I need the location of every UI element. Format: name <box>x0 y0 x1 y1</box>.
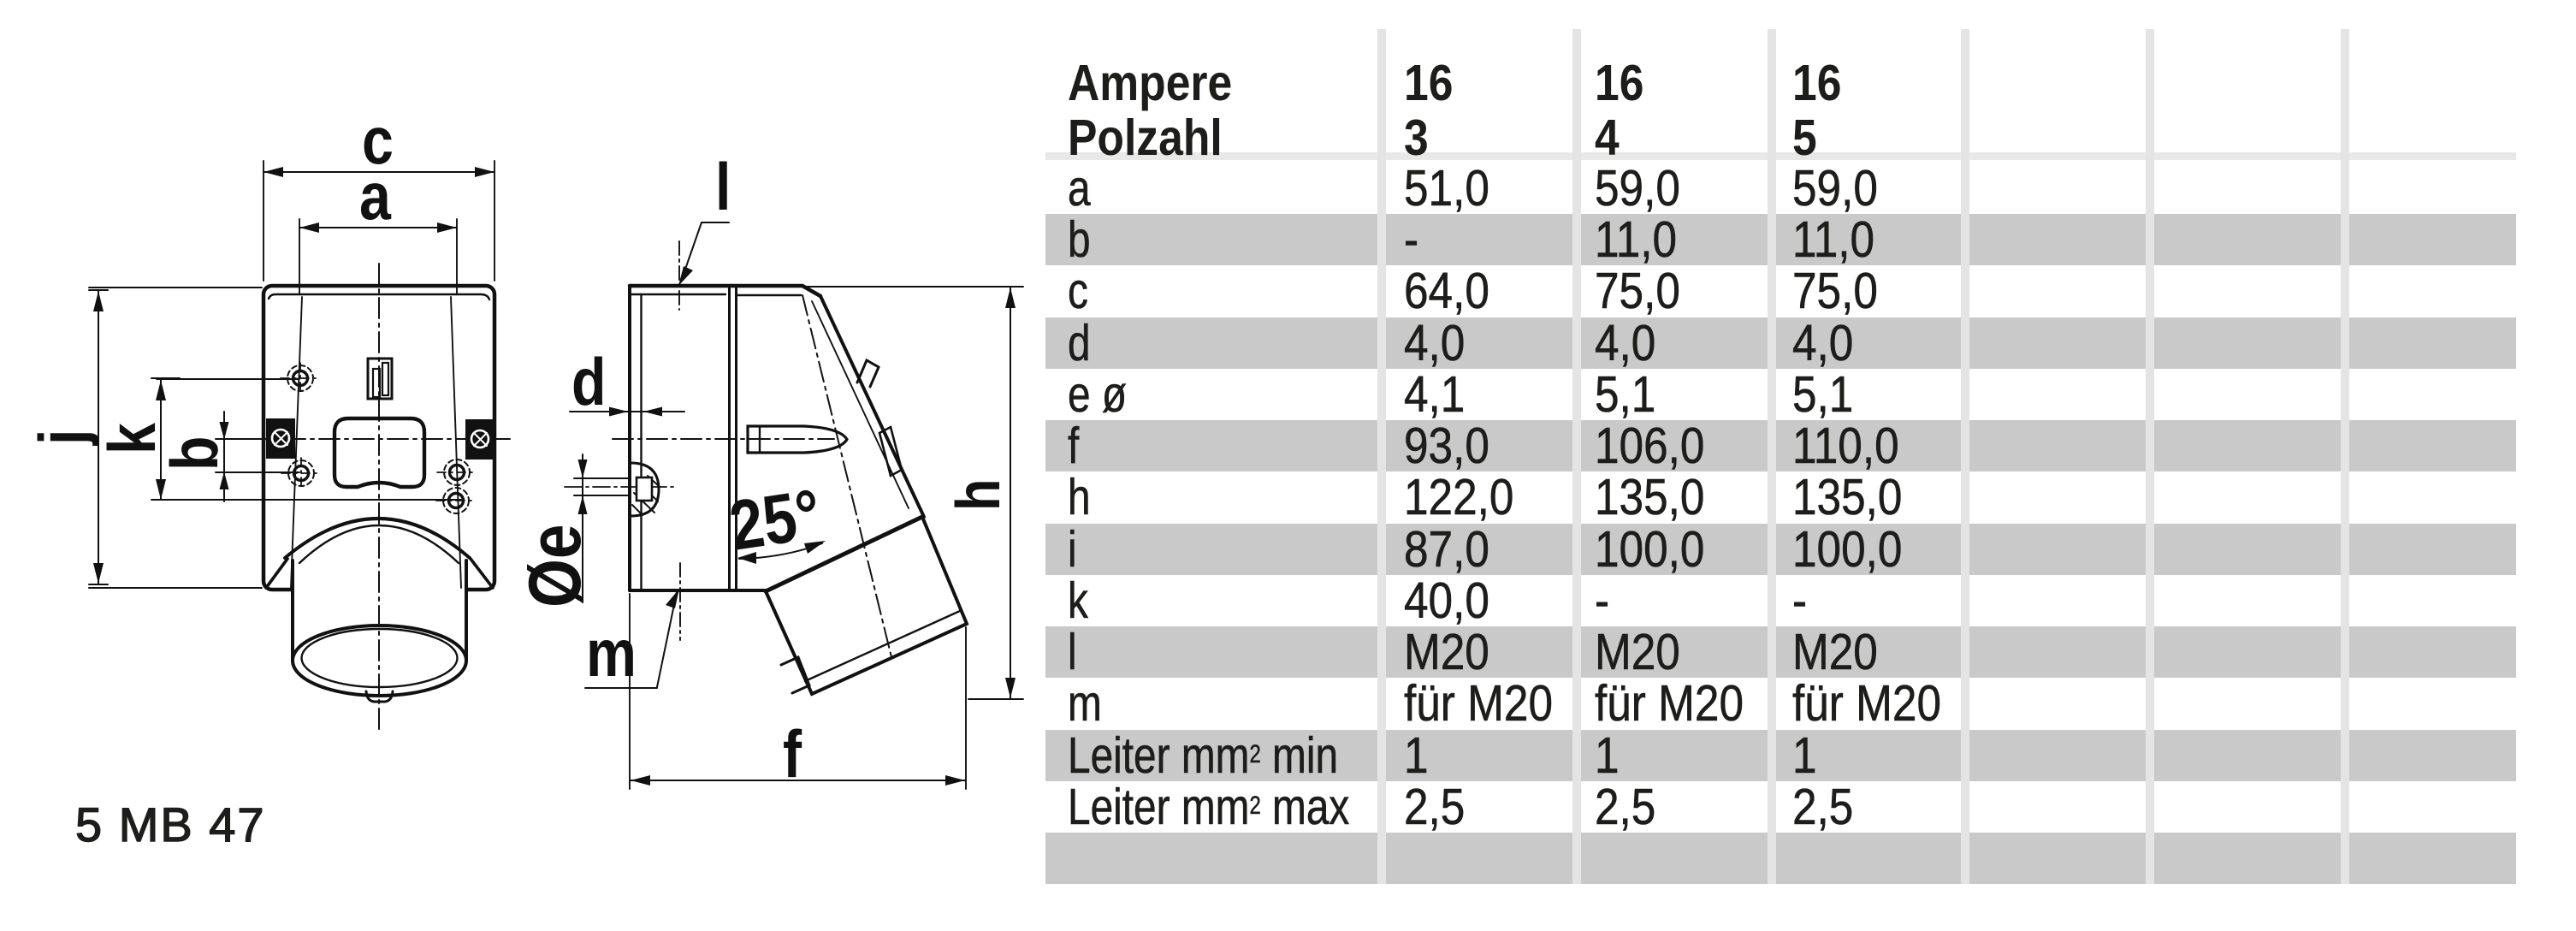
svg-text:d: d <box>571 345 607 419</box>
svg-text:j: j <box>26 430 100 447</box>
svg-text:f: f <box>783 717 802 792</box>
svg-text:h: h <box>945 479 1013 511</box>
svg-text:Øe: Øe <box>513 524 595 608</box>
svg-text:a: a <box>359 159 392 234</box>
svg-text:b: b <box>157 436 232 471</box>
svg-text:25°: 25° <box>725 475 826 566</box>
svg-text:l: l <box>715 150 731 224</box>
